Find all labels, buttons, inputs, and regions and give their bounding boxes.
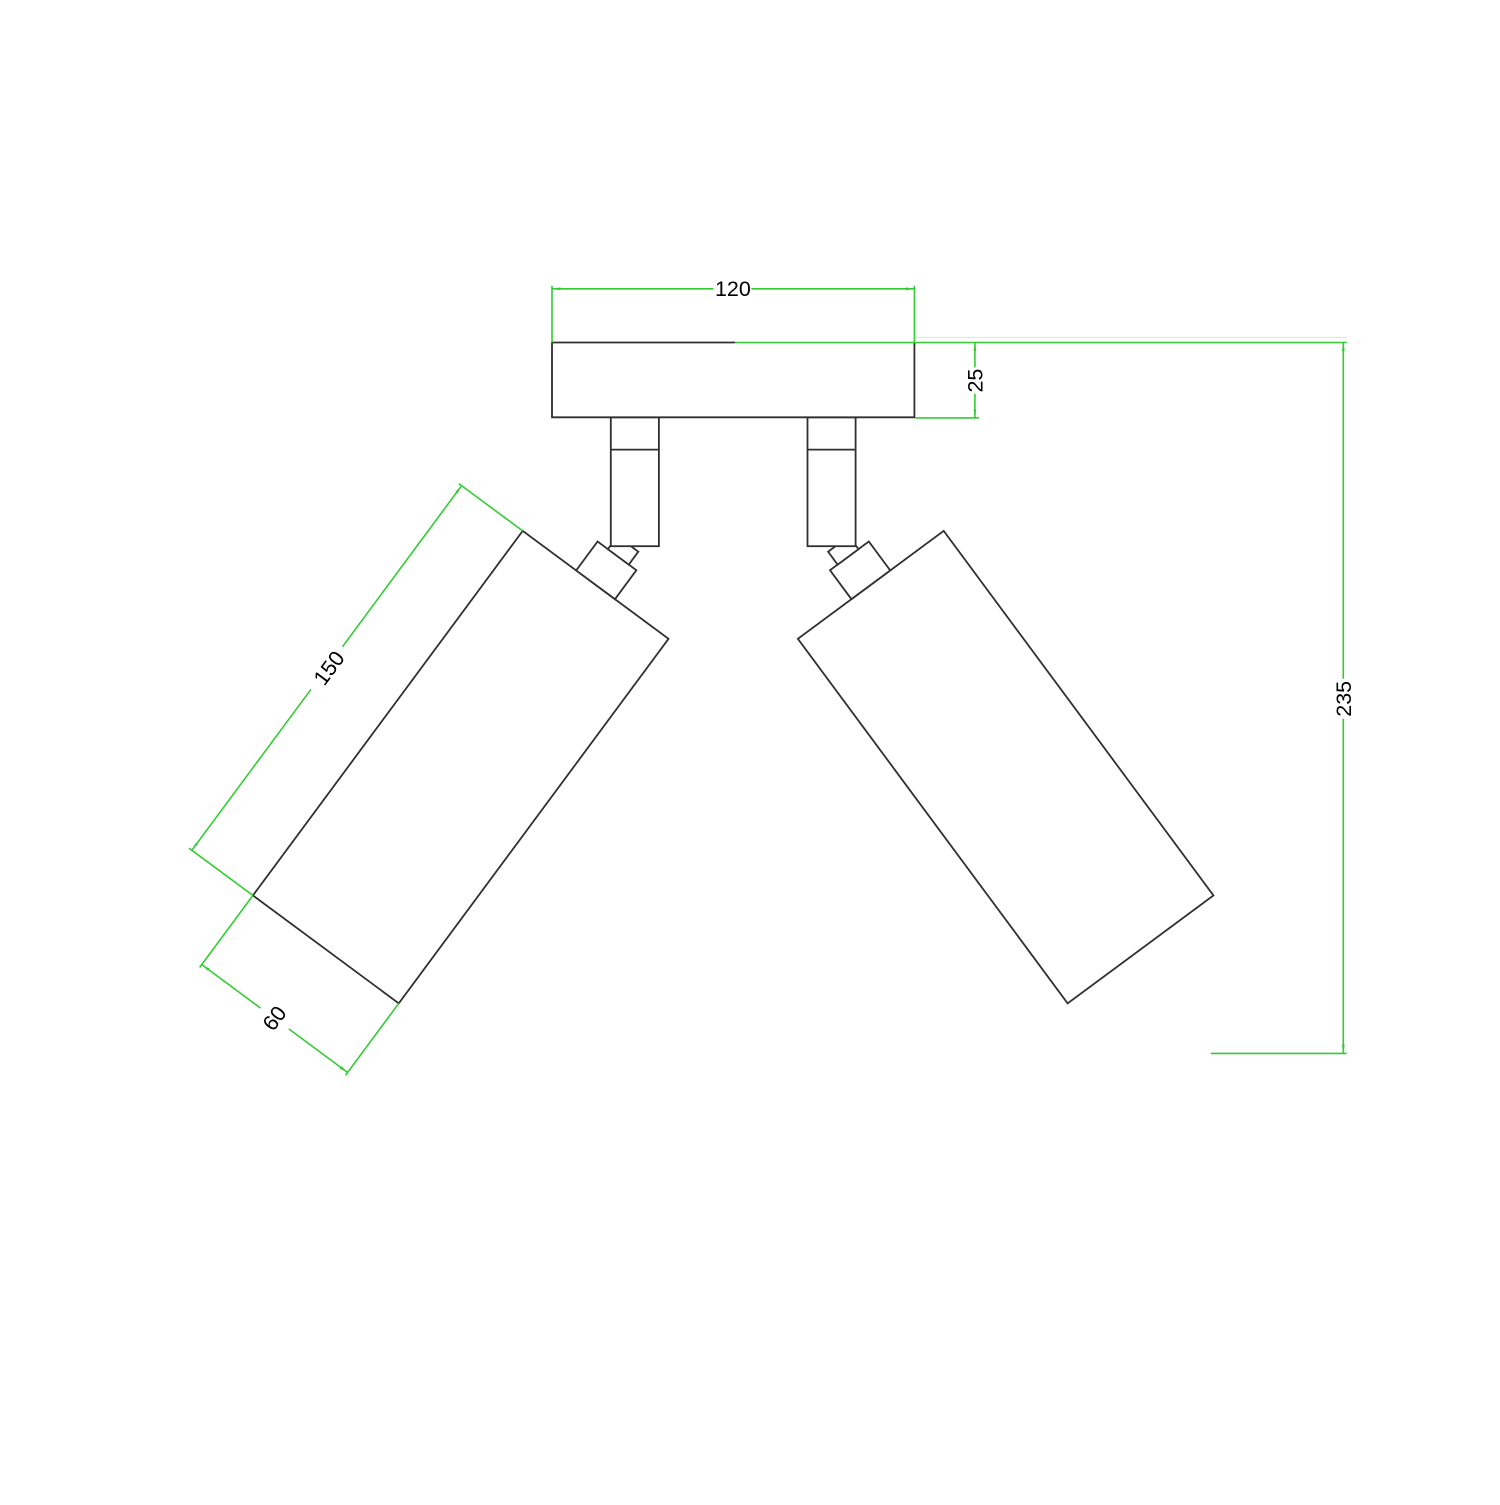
svg-text:120: 120 xyxy=(715,277,751,301)
svg-text:25: 25 xyxy=(964,369,988,393)
svg-text:235: 235 xyxy=(1332,681,1356,717)
